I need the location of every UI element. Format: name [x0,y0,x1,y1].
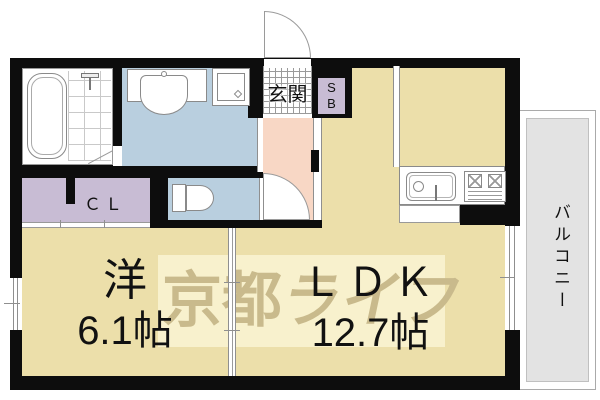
balcony-sliding-door [505,226,520,330]
washbasin-faucet [161,71,167,77]
entrance-door-swing [264,11,311,58]
window [10,278,22,330]
window-tick [4,303,20,304]
ldk-room-entry [322,118,352,228]
counter-end-panel [399,205,460,223]
stove-grill [468,190,502,200]
washroom-extension [248,118,257,166]
wall-kitchen-bottom [460,205,505,225]
washbasin [140,75,188,115]
gas-stove [464,171,506,202]
shoe-box-label: SB [326,80,338,113]
toilet-tank [172,184,186,212]
shower-fixture-stem [89,78,91,90]
room-sliding-partition [228,228,236,376]
sink-faucet [435,185,437,201]
kitchen-counter [399,166,505,205]
wall-kitchen-divider [393,66,400,167]
washbasin-counter [127,69,207,102]
floorplan-canvas: バルコニー 玄関 SB ＣＬ [0,0,600,400]
entrance-label: 玄関 [263,78,312,107]
toilet-bowl [186,185,214,211]
closet-label: ＣＬ [60,190,150,215]
balcony-label: バルコニー [543,178,573,338]
western-room-size: 6.1帖 [22,298,228,356]
sink-drain [413,181,424,192]
entrance-doorway [264,59,311,68]
bathtub [27,73,67,159]
ldk-size: 12.7帖 [236,300,505,358]
bathroom-doorway [113,146,122,166]
kitchen-sink [406,172,456,201]
washing-machine-pan [212,68,250,106]
bathroom [22,68,113,165]
stove-burner [488,174,502,188]
wall-toilet-hallway [259,178,264,220]
stove-burner [468,174,482,188]
shoe-box: SB [318,78,345,114]
wall-stub-hallway [311,150,319,172]
